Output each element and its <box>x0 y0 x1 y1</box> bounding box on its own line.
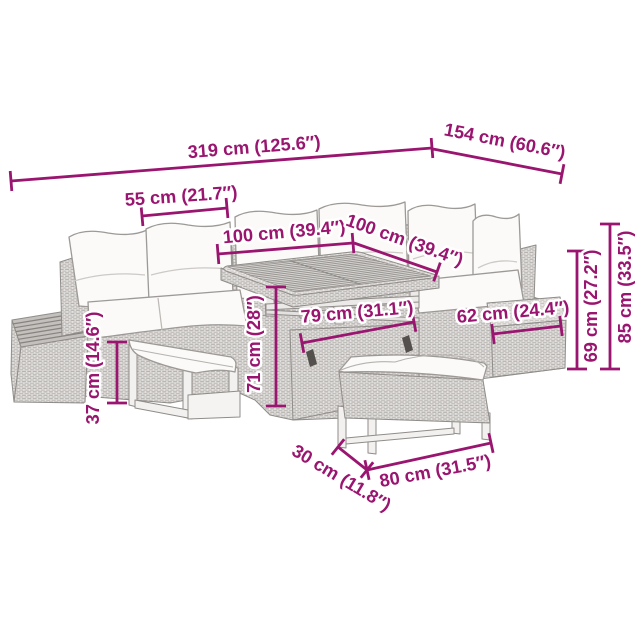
svg-text:69 cm (27.2″): 69 cm (27.2″) <box>581 250 601 363</box>
svg-text:71 cm (28″): 71 cm (28″) <box>244 295 264 393</box>
svg-text:37 cm (14.6″): 37 cm (14.6″) <box>83 312 103 425</box>
svg-text:85 cm (33.5″): 85 cm (33.5″) <box>615 231 635 344</box>
